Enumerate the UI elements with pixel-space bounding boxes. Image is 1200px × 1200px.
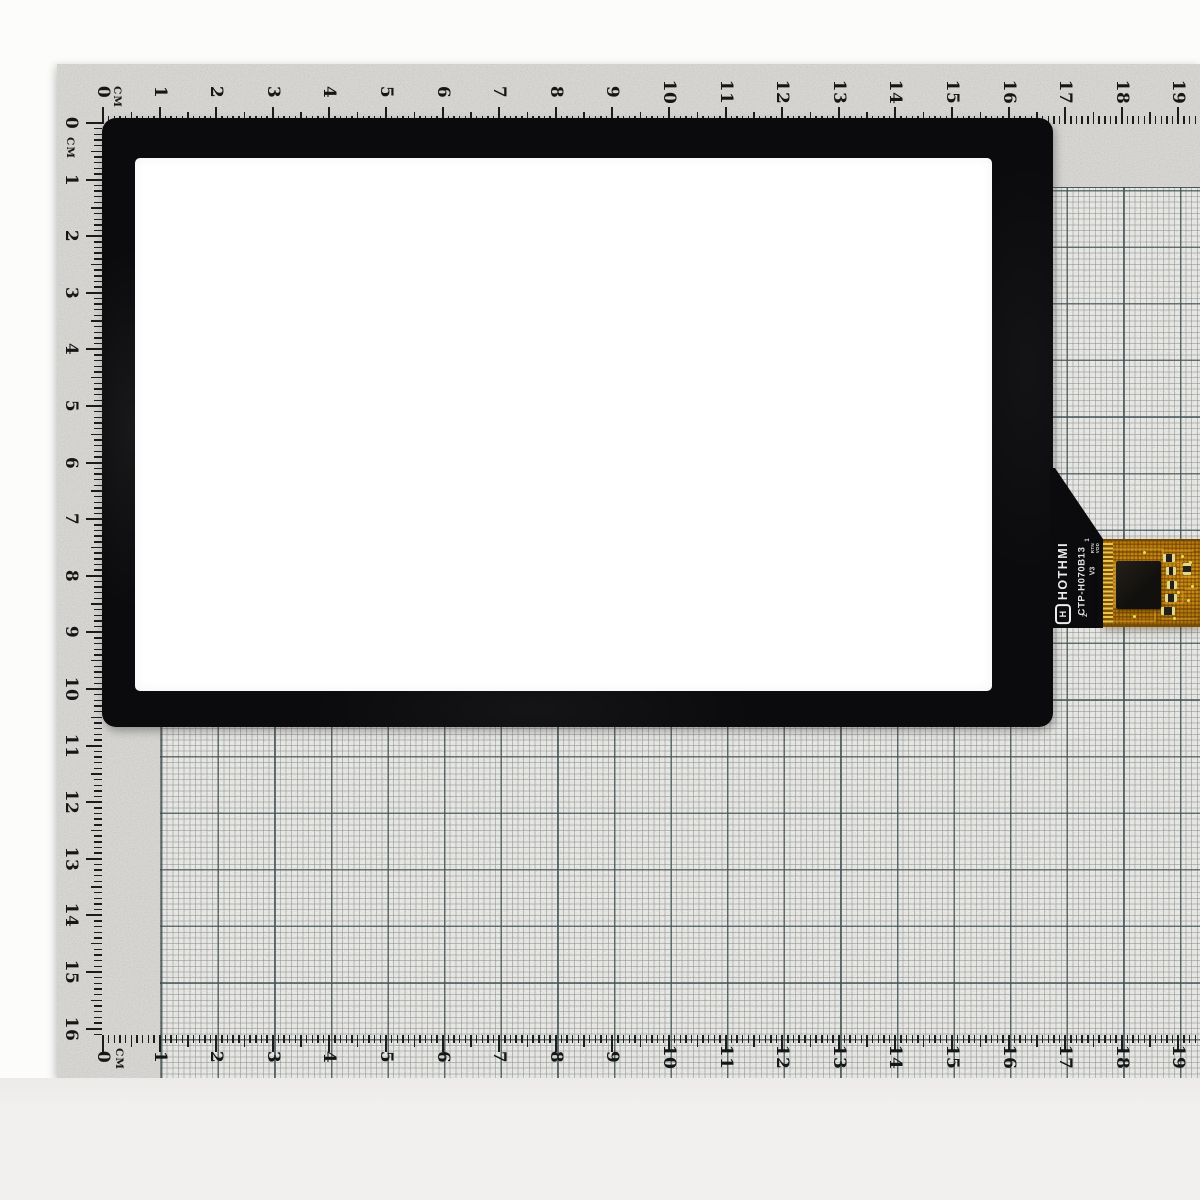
model-number: CTP-H070B13: [1077, 547, 1088, 616]
touch-panel-bezel: [102, 118, 1053, 727]
ruler-unit-left: CM: [64, 137, 76, 159]
via-dot: [1187, 599, 1190, 602]
pin-name-labels: RTN VDD: [1090, 543, 1100, 553]
via-dot: [1181, 555, 1184, 558]
pin-1-label: 1: [1085, 538, 1091, 541]
smd-component: [1183, 563, 1191, 575]
touch-panel-active-area: [135, 158, 992, 691]
hothmi-logo-icon: H: [1055, 604, 1071, 624]
flex-cable: [1103, 539, 1200, 627]
via-dot: [1189, 561, 1192, 564]
smd-component: [1167, 581, 1177, 589]
pin-label-vdd: VDD: [1095, 543, 1100, 553]
via-dot: [1133, 615, 1136, 618]
ruler-unit-top: CM: [111, 86, 123, 108]
photo-margin-bottom: [0, 1078, 1200, 1200]
ruler-unit-bottom: CM: [113, 1048, 125, 1070]
smd-component: [1165, 594, 1177, 602]
via-dot: [1191, 585, 1194, 588]
fpc-contact-fingers: [1103, 543, 1113, 623]
brand-mark: H HOTHMI: [1055, 542, 1071, 624]
brand-name: HOTHMI: [1056, 542, 1070, 600]
touch-controller-chip: [1116, 561, 1161, 609]
smd-component: [1161, 607, 1175, 615]
product-photo: 012345678910111213141516171819 012345678…: [0, 0, 1200, 1200]
smd-component: [1163, 554, 1175, 562]
revision-label: V3: [1090, 567, 1097, 576]
via-dot: [1173, 617, 1176, 620]
smd-component: [1166, 567, 1176, 575]
via-dot: [1177, 591, 1180, 594]
via-dot: [1143, 551, 1146, 554]
mark-z: Z: [1083, 613, 1089, 617]
